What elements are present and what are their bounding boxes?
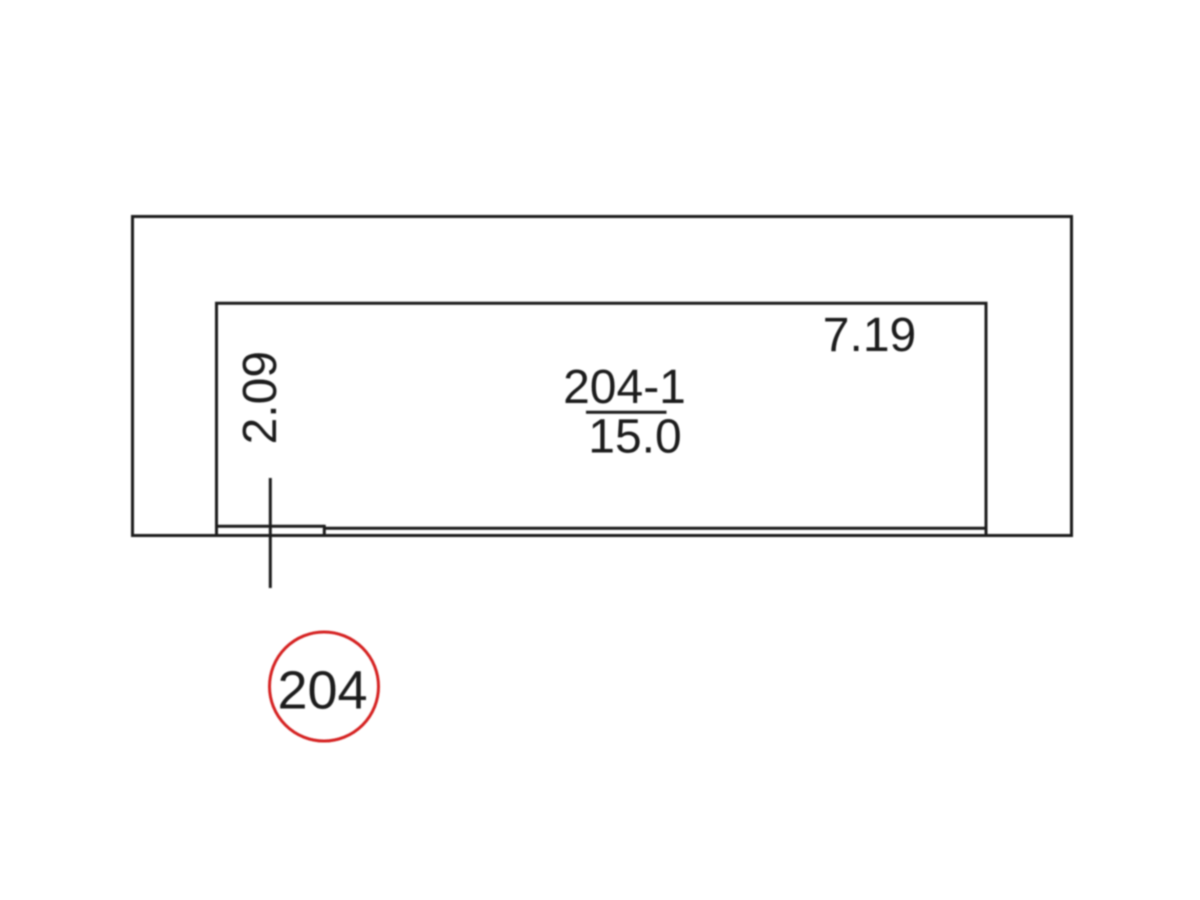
svg-text:15.0: 15.0 [588, 411, 681, 464]
svg-text:204-1: 204-1 [563, 361, 686, 414]
svg-text:204: 204 [277, 661, 367, 721]
svg-text:2.09: 2.09 [234, 351, 287, 444]
svg-text:7.19: 7.19 [823, 309, 916, 362]
